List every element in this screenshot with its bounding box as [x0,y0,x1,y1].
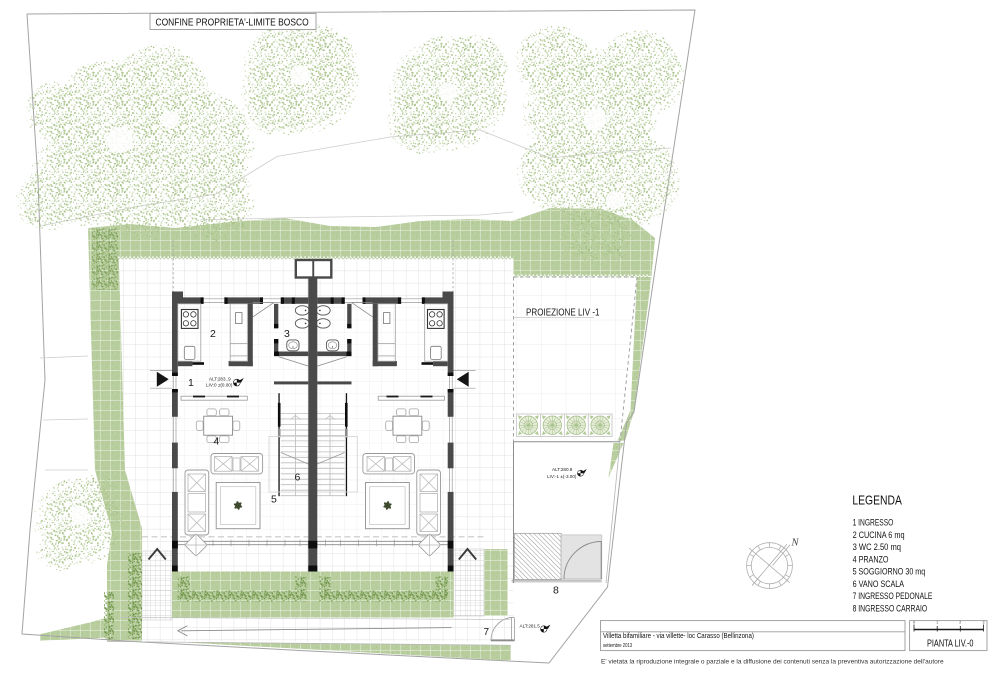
svg-text:5: 5 [271,494,277,506]
svg-text:2: 2 [959,621,961,625]
svg-text:5 SOGGIORNO 30 mq: 5 SOGGIORNO 30 mq [853,567,926,577]
svg-text:8: 8 [553,585,559,597]
svg-text:N: N [791,538,800,549]
svg-text:3 WC 2.50 mq: 3 WC 2.50 mq [853,543,902,553]
svg-text:6: 6 [295,472,301,484]
svg-text:8 INGRESSO CARRAIO: 8 INGRESSO CARRAIO [853,603,928,613]
svg-text:LEGENDA: LEGENDA [852,494,902,508]
svg-text:4: 4 [214,436,220,448]
svg-text:6 VANO SCALA: 6 VANO SCALA [853,579,905,589]
svg-text:PROIEZIONE LIV -1: PROIEZIONE LIV -1 [526,307,600,318]
svg-text:3: 3 [284,328,290,340]
svg-text:LIV:-1 ±(-3.00): LIV:-1 ±(-3.00) [547,474,577,479]
svg-text:LIV:0 ±(0.00): LIV:0 ±(0.00) [206,382,233,387]
svg-text:1: 1 [188,377,194,389]
svg-text:Villetta bifamiliare - via vil: Villetta bifamiliare - via villette- loc… [603,633,754,641]
svg-text:2 CUCINA 6 mq: 2 CUCINA 6 mq [853,530,905,540]
svg-text:0: 0 [913,621,915,625]
svg-text:3: 3 [983,621,985,625]
svg-text:ALT:281.5: ALT:281.5 [520,624,541,629]
svg-text:CONFINE PROPRIETA'-LIMITE BOSC: CONFINE PROPRIETA'-LIMITE BOSCO [156,17,309,28]
svg-text:2: 2 [210,328,216,340]
svg-text:settembre 2013: settembre 2013 [603,642,632,649]
svg-text:1 INGRESSO: 1 INGRESSO [853,518,894,528]
svg-text:ALT:280.9: ALT:280.9 [552,467,573,472]
svg-text:7: 7 [484,627,490,638]
svg-text:PIANTA LIV.-0: PIANTA LIV.-0 [927,637,973,649]
svg-text:ALT:283..9: ALT:283..9 [209,377,231,382]
svg-text:4 PRANZO: 4 PRANZO [853,555,889,565]
svg-text:1: 1 [936,621,938,625]
svg-text:E' vietata la riproduzione int: E' vietata la riproduzione integrale o p… [601,659,944,666]
svg-text:7 INGRESSO PEDONALE: 7 INGRESSO PEDONALE [853,591,933,601]
